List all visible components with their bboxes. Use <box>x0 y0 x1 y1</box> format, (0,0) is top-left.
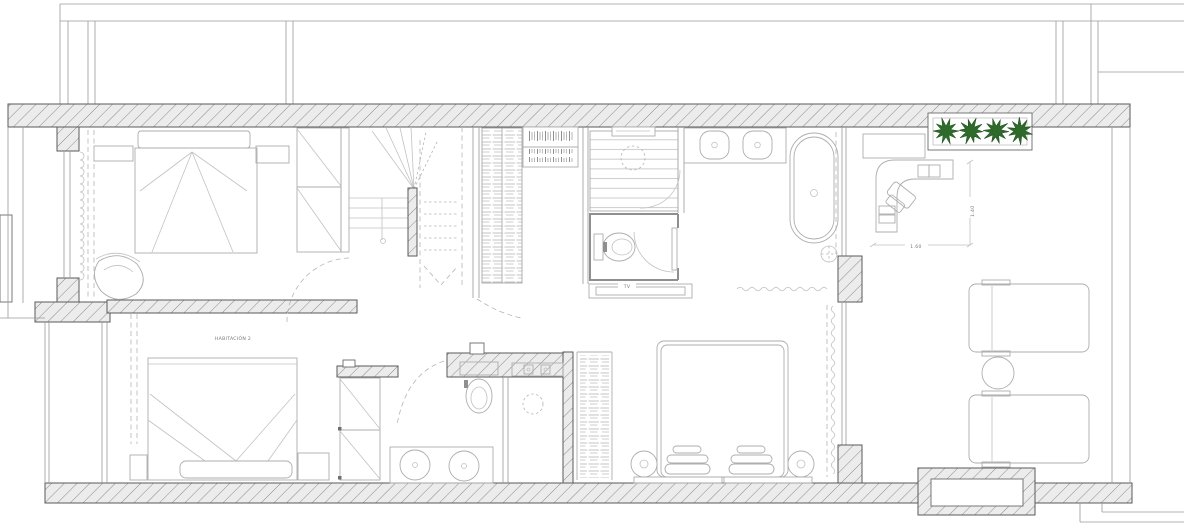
shower-room <box>590 127 680 211</box>
staircase <box>287 127 462 322</box>
armchair <box>94 253 143 299</box>
bathroom2-wall-right <box>563 352 573 483</box>
bed <box>148 358 297 480</box>
downpipe-box <box>0 215 12 302</box>
dimension-lines: 1.60 1.40 <box>870 160 976 250</box>
upper-floor-outline <box>60 4 1184 104</box>
shower-floor-drain <box>523 394 543 414</box>
freestanding-bathtub <box>790 133 838 243</box>
wc: TV <box>589 214 692 298</box>
wall-niche <box>612 127 655 136</box>
bookshelf <box>523 127 578 167</box>
room2-label: HABITACIÓN 2 <box>215 335 251 342</box>
round-nightstand <box>788 451 814 477</box>
door-swing <box>397 361 444 425</box>
vanity-counter <box>684 128 786 163</box>
foot-bench <box>724 477 812 483</box>
round-side-table <box>982 357 1014 389</box>
bedroom-divider-wall <box>107 300 357 313</box>
vanity <box>390 447 493 483</box>
bathroom2-wall-left <box>337 366 398 377</box>
slatted-floor <box>590 131 678 211</box>
shower-curtain <box>737 287 827 291</box>
wc-door-swing <box>634 232 674 272</box>
curtain <box>831 306 835 474</box>
toilet <box>594 233 635 261</box>
foot-bench <box>634 477 722 483</box>
window-curtain <box>80 130 94 298</box>
wall-bench <box>863 134 925 158</box>
hall-closets <box>477 127 578 318</box>
bedroom-2: HABITACIÓN 2 <box>130 314 380 480</box>
planter <box>928 112 1036 150</box>
office-chair <box>881 181 916 216</box>
master-bedroom <box>577 305 835 483</box>
nightstand <box>130 455 147 480</box>
floor-plan-svg: TV <box>0 0 1184 527</box>
floor-plan-page: TV <box>0 0 1184 527</box>
sink <box>743 131 772 159</box>
desk-depth-dimension: 1.40 <box>970 206 976 217</box>
desk-width-dimension: 1.60 <box>910 244 921 250</box>
tall-cabinet <box>338 378 380 480</box>
wardrobe <box>297 128 349 252</box>
sink <box>700 131 729 159</box>
bed <box>135 131 257 253</box>
sun-lounger <box>969 280 1089 356</box>
tv-console: TV <box>589 282 692 298</box>
stair-direction-arrow <box>424 266 458 285</box>
tv-label: TV <box>623 284 631 290</box>
bathroom2-wall-top <box>447 353 570 377</box>
floor-drain <box>821 246 837 262</box>
wc-door-leaf <box>672 228 677 270</box>
wardrobe <box>577 352 612 480</box>
dresser <box>256 146 289 163</box>
bathroom-2 <box>390 361 563 483</box>
stair-stringer <box>408 188 417 256</box>
nightstand <box>94 146 133 161</box>
bathroom-main <box>684 128 838 291</box>
window-curtain <box>131 314 137 444</box>
nightstand <box>298 453 329 480</box>
bed <box>657 341 788 477</box>
round-nightstand <box>631 451 657 477</box>
terrace: 1.60 1.40 <box>863 134 1089 467</box>
sun-lounger <box>969 391 1089 467</box>
